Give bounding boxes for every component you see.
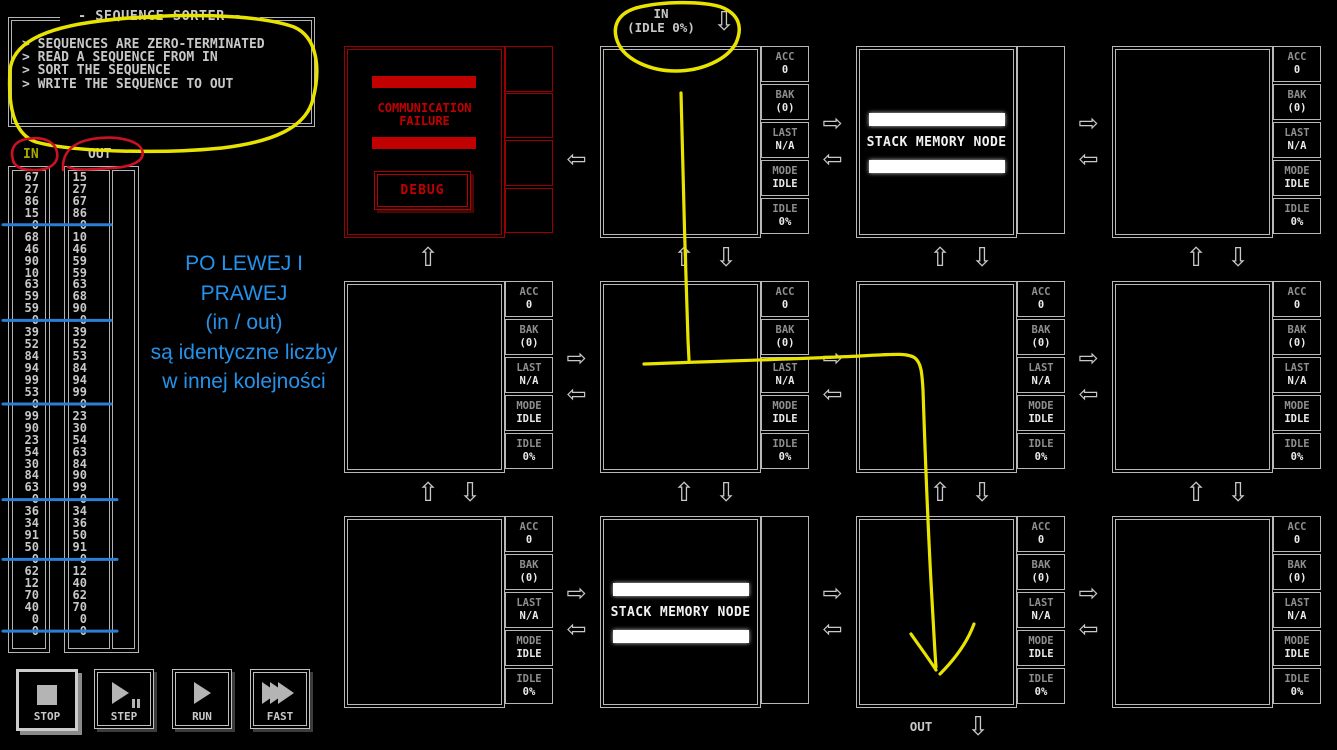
register-label: ACC <box>1018 286 1064 299</box>
left-port-arrow-icon: ⇦ <box>822 147 842 171</box>
register-value: (0) <box>1274 337 1320 350</box>
bak-register: BAK(0) <box>505 554 553 590</box>
in-value-row: 15 <box>13 208 45 220</box>
register-value: 0 <box>506 299 552 312</box>
register-value: 0% <box>506 451 552 464</box>
left-port-arrow-icon: ⇦ <box>566 382 586 406</box>
register-label: BAK <box>506 559 552 572</box>
out-value-row: 91 <box>69 542 109 554</box>
right-port-arrow-icon: ⇨ <box>822 581 842 605</box>
mode-register: MODEIDLE <box>1017 395 1065 431</box>
failure-node-side-cell <box>505 188 553 234</box>
right-port-arrow-icon: ⇨ <box>1078 581 1098 605</box>
register-label: ACC <box>762 286 808 299</box>
failure-node-side-cell <box>505 140 553 186</box>
compute-node-editor[interactable] <box>600 281 761 473</box>
register-value: 0 <box>1018 299 1064 312</box>
register-value: N/A <box>1274 610 1320 623</box>
register-value: 0% <box>506 686 552 699</box>
register-label: BAK <box>1274 559 1320 572</box>
register-label: BAK <box>1018 324 1064 337</box>
in-value-row: 50 <box>13 542 45 554</box>
register-label: MODE <box>506 635 552 648</box>
idle-register: IDLE0% <box>1273 198 1321 234</box>
last-register: LASTN/A <box>505 592 553 628</box>
stack-memory-node-label: STACK MEMORY NODE <box>857 135 1016 150</box>
fast-icon <box>251 680 309 706</box>
bak-register: BAK(0) <box>505 319 553 355</box>
stack-memory-node-label: STACK MEMORY NODE <box>601 605 760 620</box>
register-label: BAK <box>1274 89 1320 102</box>
step-button[interactable]: STEP <box>94 669 154 729</box>
bak-register: BAK(0) <box>1017 554 1065 590</box>
register-label: BAK <box>762 89 808 102</box>
register-value: 0% <box>1274 451 1320 464</box>
idle-register: IDLE0% <box>505 668 553 704</box>
up-port-arrow-icon: ⇧ <box>1185 480 1207 506</box>
out-value-row: 0 <box>69 626 109 638</box>
register-value: N/A <box>762 140 808 153</box>
bak-register: BAK(0) <box>761 84 809 120</box>
left-port-arrow-icon: ⇦ <box>1078 382 1098 406</box>
compute-node-editor[interactable] <box>600 46 761 238</box>
page-title: - SEQUENCE SORTER - <box>60 7 260 25</box>
register-label: LAST <box>762 362 808 375</box>
up-port-arrow-icon: ⇧ <box>417 245 439 271</box>
right-port-arrow-icon: ⇨ <box>822 346 842 370</box>
register-label: MODE <box>762 165 808 178</box>
out-values-list: 1527678601046595963689003952538494990233… <box>69 172 109 638</box>
left-port-arrow-icon: ⇦ <box>1078 617 1098 641</box>
register-value: 0 <box>1274 534 1320 547</box>
left-port-arrow-icon: ⇦ <box>822 617 842 641</box>
out-value-row: 99 <box>69 387 109 399</box>
last-register: LASTN/A <box>1017 357 1065 393</box>
right-port-arrow-icon: ⇨ <box>566 581 586 605</box>
idle-register: IDLE0% <box>1273 668 1321 704</box>
register-value: (0) <box>1018 337 1064 350</box>
register-value: N/A <box>1274 375 1320 388</box>
acc-register: ACC0 <box>1273 281 1321 317</box>
description-line: > WRITE THE SEQUENCE TO OUT <box>22 78 265 91</box>
in-value-row: 63 <box>13 482 45 494</box>
stack-node-side-panel <box>761 516 809 704</box>
down-port-arrow-icon: ⇩ <box>715 245 737 271</box>
register-value: N/A <box>762 375 808 388</box>
up-port-arrow-icon: ⇧ <box>1185 245 1207 271</box>
annotation-note-line: (in / out) <box>140 308 348 338</box>
down-port-arrow-icon: ⇩ <box>715 480 737 506</box>
register-label: MODE <box>1018 635 1064 648</box>
in-value-row: 59 <box>13 303 45 315</box>
idle-register: IDLE0% <box>1017 668 1065 704</box>
register-value: 0% <box>1018 686 1064 699</box>
annotation-note-line: PO LEWEJ I PRAWEJ <box>140 249 348 308</box>
compute-node-editor[interactable] <box>1112 281 1273 473</box>
register-label: LAST <box>1018 362 1064 375</box>
register-label: ACC <box>1274 521 1320 534</box>
register-value: IDLE <box>1274 413 1320 426</box>
register-label: IDLE <box>1274 438 1320 451</box>
register-value: 0% <box>1018 451 1064 464</box>
in-value-row: 53 <box>13 387 45 399</box>
last-register: LASTN/A <box>505 357 553 393</box>
failure-bottom-bar <box>372 137 476 149</box>
bak-register: BAK(0) <box>761 319 809 355</box>
compute-node-editor[interactable] <box>856 281 1017 473</box>
stack-top-bar <box>869 113 1005 126</box>
debug-button-label: DEBUG <box>375 172 470 209</box>
out-port-down-arrow-icon: ⇩ <box>967 714 989 740</box>
in-table: 6727861506846901063595903952849499530999… <box>8 166 50 653</box>
bak-register: BAK(0) <box>1017 319 1065 355</box>
down-port-arrow-icon: ⇩ <box>459 480 481 506</box>
bottom-out-port-label: OUT <box>910 720 933 734</box>
register-value: (0) <box>762 337 808 350</box>
top-in-port-label: IN(IDLE 0%) <box>627 7 695 34</box>
register-value: IDLE <box>1274 648 1320 661</box>
register-label: LAST <box>506 597 552 610</box>
mode-register: MODEIDLE <box>505 395 553 431</box>
register-label: LAST <box>1018 597 1064 610</box>
register-label: IDLE <box>1274 203 1320 216</box>
acc-register: ACC0 <box>761 281 809 317</box>
acc-register: ACC0 <box>1017 516 1065 552</box>
stack-memory-node: STACK MEMORY NODE <box>600 516 761 708</box>
register-value: 0% <box>1274 686 1320 699</box>
idle-register: IDLE0% <box>761 198 809 234</box>
up-port-arrow-icon: ⇧ <box>929 245 951 271</box>
register-label: MODE <box>1274 400 1320 413</box>
stack-top-bar <box>613 583 749 596</box>
register-value: IDLE <box>762 178 808 191</box>
register-label: MODE <box>506 400 552 413</box>
register-label: BAK <box>1018 559 1064 572</box>
register-label: MODE <box>1018 400 1064 413</box>
up-port-arrow-icon: ⇧ <box>673 245 695 271</box>
register-value: 0 <box>762 64 808 77</box>
register-label: LAST <box>1274 362 1320 375</box>
stop-button[interactable]: STOP <box>16 669 78 731</box>
last-register: LASTN/A <box>1273 357 1321 393</box>
last-register: LASTN/A <box>761 357 809 393</box>
in-values-list: 6727861506846901063595903952849499530999… <box>13 172 45 638</box>
register-label: IDLE <box>506 438 552 451</box>
failure-text-line2: FAILURE <box>345 115 504 128</box>
register-value: 0% <box>762 451 808 464</box>
out-value-row: 86 <box>69 208 109 220</box>
down-port-arrow-icon: ⇩ <box>1227 480 1249 506</box>
last-register: LASTN/A <box>761 122 809 158</box>
register-value: N/A <box>1018 375 1064 388</box>
idle-register: IDLE0% <box>505 433 553 469</box>
register-label: MODE <box>1274 635 1320 648</box>
tis100-screen: - SEQUENCE SORTER - > SEQUENCES ARE ZERO… <box>0 0 1337 750</box>
down-port-arrow-icon: ⇩ <box>971 480 993 506</box>
register-value: N/A <box>1274 140 1320 153</box>
register-label: IDLE <box>506 673 552 686</box>
register-value: (0) <box>762 102 808 115</box>
acc-register: ACC0 <box>1273 46 1321 82</box>
register-label: BAK <box>762 324 808 337</box>
left-port-arrow-icon: ⇦ <box>822 382 842 406</box>
register-label: IDLE <box>1018 438 1064 451</box>
left-port-arrow-icon: ⇦ <box>1078 147 1098 171</box>
register-value: IDLE <box>506 413 552 426</box>
up-port-arrow-icon: ⇧ <box>673 480 695 506</box>
register-value: N/A <box>506 375 552 388</box>
register-label: LAST <box>1274 597 1320 610</box>
stack-bottom-bar <box>613 630 749 643</box>
stack-memory-node: STACK MEMORY NODE <box>856 46 1017 238</box>
stack-node-side-panel <box>1017 46 1065 234</box>
compute-node-editor[interactable] <box>344 281 505 473</box>
register-value: IDLE <box>506 648 552 661</box>
register-label: ACC <box>506 521 552 534</box>
last-register: LASTN/A <box>1273 592 1321 628</box>
failure-node-side-cell <box>505 46 553 92</box>
stop-icon <box>19 682 75 708</box>
in-port-down-arrow-icon: ⇩ <box>713 9 735 35</box>
compute-node-editor[interactable] <box>344 516 505 708</box>
step-icon <box>95 680 153 706</box>
compute-node-editor[interactable] <box>1112 516 1273 708</box>
compute-node-editor[interactable] <box>1112 46 1273 238</box>
out-value-row: 0 <box>69 614 109 626</box>
out-table: 1527678601046595963689003952538494990233… <box>64 166 139 653</box>
register-label: IDLE <box>1274 673 1320 686</box>
register-value: N/A <box>506 610 552 623</box>
annotation-note-text: PO LEWEJ I PRAWEJ(in / out)są identyczne… <box>140 249 348 397</box>
left-port-arrow-icon: ⇦ <box>566 617 586 641</box>
register-label: LAST <box>506 362 552 375</box>
register-value: IDLE <box>1018 413 1064 426</box>
bak-register: BAK(0) <box>1273 554 1321 590</box>
register-label: MODE <box>1274 165 1320 178</box>
bak-register: BAK(0) <box>1273 319 1321 355</box>
register-value: 0% <box>1274 216 1320 229</box>
fast-button[interactable]: FAST <box>250 669 310 729</box>
out-column-header: OUT <box>88 147 111 162</box>
register-value: 0 <box>762 299 808 312</box>
register-label: ACC <box>1018 521 1064 534</box>
idle-register: IDLE0% <box>761 433 809 469</box>
register-value: (0) <box>1018 572 1064 585</box>
mode-register: MODEIDLE <box>505 630 553 666</box>
mode-register: MODEIDLE <box>761 395 809 431</box>
register-value: IDLE <box>762 413 808 426</box>
right-port-arrow-icon: ⇨ <box>822 111 842 135</box>
register-value: IDLE <box>1274 178 1320 191</box>
acc-register: ACC0 <box>761 46 809 82</box>
run-button[interactable]: RUN <box>172 669 232 729</box>
register-value: (0) <box>1274 102 1320 115</box>
mode-register: MODEIDLE <box>761 160 809 196</box>
step-button-label: STEP <box>95 710 153 723</box>
last-register: LASTN/A <box>1017 592 1065 628</box>
acc-register: ACC0 <box>1017 281 1065 317</box>
up-port-arrow-icon: ⇧ <box>417 480 439 506</box>
annotation-note-line: w innej kolejności <box>140 367 348 397</box>
mode-register: MODEIDLE <box>1273 395 1321 431</box>
debug-button[interactable]: DEBUG <box>374 171 471 210</box>
fast-button-label: FAST <box>251 710 309 723</box>
mode-register: MODEIDLE <box>1273 630 1321 666</box>
right-port-arrow-icon: ⇨ <box>1078 346 1098 370</box>
register-value: 0% <box>762 216 808 229</box>
register-label: ACC <box>762 51 808 64</box>
run-icon <box>173 680 231 706</box>
register-value: (0) <box>506 337 552 350</box>
register-label: IDLE <box>1018 673 1064 686</box>
left-port-arrow-icon: ⇦ <box>566 147 586 171</box>
register-value: (0) <box>1274 572 1320 585</box>
stack-bottom-bar <box>869 160 1005 173</box>
out-table-actual-column <box>112 170 135 649</box>
register-value: 0 <box>1018 534 1064 547</box>
puzzle-description-lines: > SEQUENCES ARE ZERO-TERMINATED> READ A … <box>22 38 265 91</box>
register-label: IDLE <box>762 438 808 451</box>
acc-register: ACC0 <box>505 281 553 317</box>
out-value-row: 70 <box>69 602 109 614</box>
idle-register: IDLE0% <box>1273 433 1321 469</box>
compute-node-editor[interactable] <box>856 516 1017 708</box>
right-port-arrow-icon: ⇨ <box>566 346 586 370</box>
idle-register: IDLE0% <box>1017 433 1065 469</box>
register-label: MODE <box>762 400 808 413</box>
down-port-arrow-icon: ⇩ <box>1227 245 1249 271</box>
register-label: LAST <box>762 127 808 140</box>
last-register: LASTN/A <box>1273 122 1321 158</box>
out-table-expected-column: 1527678601046595963689003952538494990233… <box>68 170 110 649</box>
annotation-note-line: są identyczne liczby <box>140 338 348 368</box>
in-value-row: 40 <box>13 602 45 614</box>
failure-top-bar <box>372 76 476 88</box>
register-value: 0 <box>506 534 552 547</box>
out-value-row: 99 <box>69 482 109 494</box>
in-value-row: 0 <box>13 614 45 626</box>
communication-failure-node: COMMUNICATIONFAILUREDEBUG <box>344 46 505 238</box>
register-value: (0) <box>506 572 552 585</box>
register-value: 0 <box>1274 299 1320 312</box>
register-label: ACC <box>1274 51 1320 64</box>
in-column-header: IN <box>23 147 39 162</box>
register-value: N/A <box>1018 610 1064 623</box>
register-label: ACC <box>1274 286 1320 299</box>
register-value: IDLE <box>1018 648 1064 661</box>
register-label: BAK <box>1274 324 1320 337</box>
acc-register: ACC0 <box>505 516 553 552</box>
up-port-arrow-icon: ⇧ <box>929 480 951 506</box>
bak-register: BAK(0) <box>1273 84 1321 120</box>
acc-register: ACC0 <box>1273 516 1321 552</box>
run-button-label: RUN <box>173 710 231 723</box>
mode-register: MODEIDLE <box>1017 630 1065 666</box>
in-value-row: 0 <box>13 626 45 638</box>
down-port-arrow-icon: ⇩ <box>971 245 993 271</box>
right-port-arrow-icon: ⇨ <box>1078 111 1098 135</box>
register-value: 0 <box>1274 64 1320 77</box>
description-line: > SORT THE SEQUENCE <box>22 64 265 77</box>
failure-node-side-cell <box>505 93 553 139</box>
stop-button-label: STOP <box>19 710 75 723</box>
in-table-inner: 6727861506846901063595903952849499530999… <box>12 170 46 649</box>
mode-register: MODEIDLE <box>1273 160 1321 196</box>
out-value-row: 90 <box>69 303 109 315</box>
register-label: BAK <box>506 324 552 337</box>
register-label: ACC <box>506 286 552 299</box>
register-label: LAST <box>1274 127 1320 140</box>
register-label: IDLE <box>762 203 808 216</box>
